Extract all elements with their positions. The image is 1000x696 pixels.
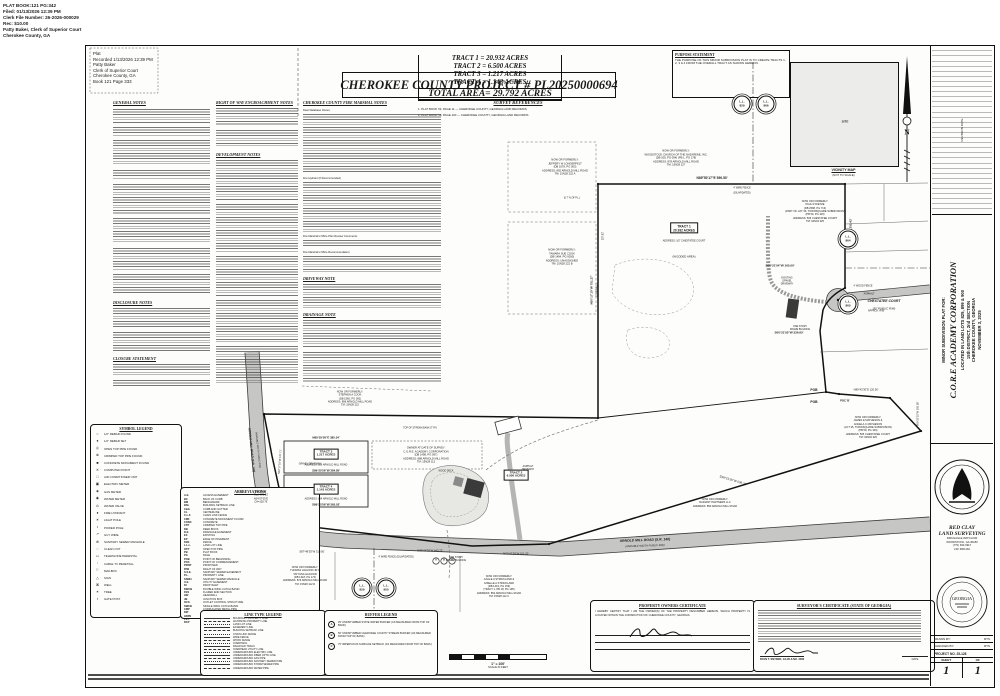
adjoiner-line: TM: 15N28 112 D [283, 583, 327, 586]
map-label: 4' WIRE FENCE [733, 188, 750, 191]
map-label: S48°21'35"W 509.32' [719, 475, 747, 487]
land-lot-number: 900 [383, 588, 388, 591]
adjoiner-line: TM: 15N28 112 [403, 460, 449, 464]
map-label: N89°25'56"E 385.34' [312, 436, 339, 439]
tract-label: TRACT 41.143 ACRES [314, 484, 339, 495]
adjoiner-block: NOW OR FORMERLY:TAMARA SUE COOK(DB 1494,… [546, 248, 578, 266]
tract-label: TRACT 31.217 ACRES [314, 449, 339, 460]
map-label: N [904, 129, 909, 138]
map-label: POB [810, 389, 817, 393]
map-label: N89°50'17"E 590.50' [696, 177, 727, 181]
map-label: WOOD DECK [438, 471, 453, 474]
land-lot-circle: L.L.865 [840, 296, 857, 313]
map-label: (0.7' N OF P.L.) [564, 198, 580, 201]
tract-address: ADDRESS: 886 ARNOLD MILL ROAD [305, 465, 348, 468]
land-lot-number: 829 [359, 588, 364, 591]
land-lot-number: 864 [845, 239, 850, 242]
map-label: (OVERALL) [597, 283, 600, 297]
map-label: A [435, 560, 437, 563]
map-label: APPROX. R/W [868, 311, 884, 314]
adjoiner-line: TM: 15N28 222 [328, 404, 372, 407]
adjoiner-block: ONE STORYFRAME BUILDING [446, 556, 466, 562]
map-label: B [443, 560, 445, 563]
tract-label-line: 20.932 ACRES [673, 228, 695, 232]
map-label: 4' WIRE FENCE (DILAPIDATED) [378, 557, 413, 560]
adjoiner-block: NOW OR FORMERLY:PAUL R DIETZE(DB 2598, P… [785, 200, 845, 224]
map-label: S87°48'35"W 310.50' [299, 550, 324, 553]
land-lot-circle: L.L.829 [354, 580, 371, 597]
map-label: 4' WOOD FENCE [854, 286, 873, 289]
map-label: S00°21'04"W 165.00' [766, 264, 795, 267]
plat-document: PLAT BOOK:121 PG:342Filed: 01/13/2026 12… [0, 0, 1000, 696]
land-lot-number: 829 [739, 104, 744, 107]
map-label: N89°42'30"E 120.50' [854, 388, 879, 391]
adjoiner-block: NOW OR FORMERLY:THOMAS HAGOOD JR &TATYAN… [283, 566, 327, 586]
adjoiner-block: NOW OR FORMERLY:WOODSTOCK CHURCH OF THE … [644, 149, 707, 167]
map-label: TOP OF STREAM BANK (TYP.) [403, 428, 437, 431]
map-label: S89°25'56"W 365.02' [312, 503, 340, 506]
adjoiner-line: TM: 15N28 112 C [477, 595, 521, 598]
map-label: ASPHALT [864, 294, 875, 297]
adjoiner-line: TM: 02N04 326 [844, 436, 892, 439]
tract-label-line: 6.500 ACRES [507, 475, 526, 479]
adjoiner-block: NOW OR FORMERLY:CAGLE A STRICKLAND &GISE… [477, 575, 521, 599]
map-label: N00°17'10"W 751.27' [590, 275, 593, 304]
map-label: S89°25'56"W 384.85' [312, 469, 340, 472]
adjoiner-line: CH=128.76' [254, 500, 268, 503]
land-lot-number: 866 [763, 104, 768, 107]
tract-label-line: 1.217 ACRES [317, 454, 336, 458]
adjoiner-block: OWNER AT DATE OF SURVEY:C.O.R.E. ACADEMY… [403, 446, 449, 464]
tract-label-line: 1.143 ACRES [317, 489, 336, 493]
map-label: (50' PUBLIC R/W) [873, 307, 896, 310]
adjoiner-line: TM: 15N28 227 [644, 163, 707, 167]
tract-address: ADDRESS: 107 CHESTATEE COURT [663, 241, 706, 244]
map-label: 287.82' [603, 232, 606, 240]
adjoiner-line: TM: 02N04 325 [785, 220, 845, 223]
map-label: S00°31'15"W 105.56' [918, 402, 921, 426]
land-lot-number: 865 [845, 304, 850, 307]
adjoiner-line: OWNER AT DATE OF SURVEY: [403, 446, 449, 450]
adjoiner-line: ADDRESS: 850 ARNOLD MILL ROAD [693, 505, 737, 508]
map-label: (VARIABLE WIDTH PUBLIC R/W) [625, 545, 664, 549]
map-label: N00°17'10"W 137.71' [279, 450, 284, 475]
adjoiner-line: NOW OR FORMERLY: [546, 248, 578, 252]
adjoiner-block: NOW OR FORMERLY:JEFFERY W LONGERFELT(DB … [542, 158, 588, 176]
adjoiner-block: A=128.96'Rad=676.23'N04°57'05"ECH=128.76… [254, 491, 268, 504]
adjoiner-line: TM: 15N28 222 A [542, 172, 588, 176]
land-lot-circle: L.L.864 [840, 231, 857, 248]
map-text-layer: N89°50'17"E 590.50'S00°42'35"W 252.42'S0… [0, 0, 1000, 696]
map-label: (WOODED AREA) [673, 255, 696, 258]
adjoiner-line: FRAME BUILDING [790, 328, 810, 331]
land-lot-circle: L.L.829 [734, 96, 751, 113]
map-label: CHESTATEE COURT [868, 300, 901, 304]
adjoiner-block: ONE STORYFRAME BUILDING [790, 325, 810, 331]
map-label: (DILAPIDATED) [733, 193, 750, 196]
map-label: POC 'B' [840, 399, 850, 402]
map-label: S00°21'05"W 326.65' [775, 331, 804, 334]
adjoiner-line: DRIVEWAY [781, 283, 794, 286]
tract-label: TRACT 26.500 ACRES [504, 470, 529, 481]
adjoiner-block: NOW OR FORMERLY:JAMES E MATHESON &ANGELA… [844, 416, 892, 440]
map-label: N89°44'39"W 443.72' [417, 549, 442, 552]
adjoiner-line: (DB 1494, PG 0050) [546, 255, 578, 259]
land-lot-circle: L.L.900 [378, 580, 395, 597]
map-label: POB [810, 401, 817, 405]
adjoiner-block: NOW OR FORMERLY:RADIANT PARTNERS LLCADDR… [693, 498, 737, 508]
adjoiner-line: TM: 15N28 222 B [546, 262, 578, 266]
tract-address: ADDRESS: 884 ARNOLD MILL ROAD [305, 498, 348, 501]
land-lot-circle: L.L.866 [758, 96, 775, 113]
map-label: N62°42'38"W 101.20' [503, 552, 528, 555]
adjoiner-line: FRAME BUILDING [446, 559, 466, 562]
adjoiner-block: EXISTINGGRAVELDRIVEWAY [781, 276, 794, 285]
tract-label: TRACT 120.932 ACRES [670, 222, 698, 233]
adjoiner-block: NOW OR FORMERLY:STEPHEN A COOK(DB 1565, … [328, 391, 372, 408]
